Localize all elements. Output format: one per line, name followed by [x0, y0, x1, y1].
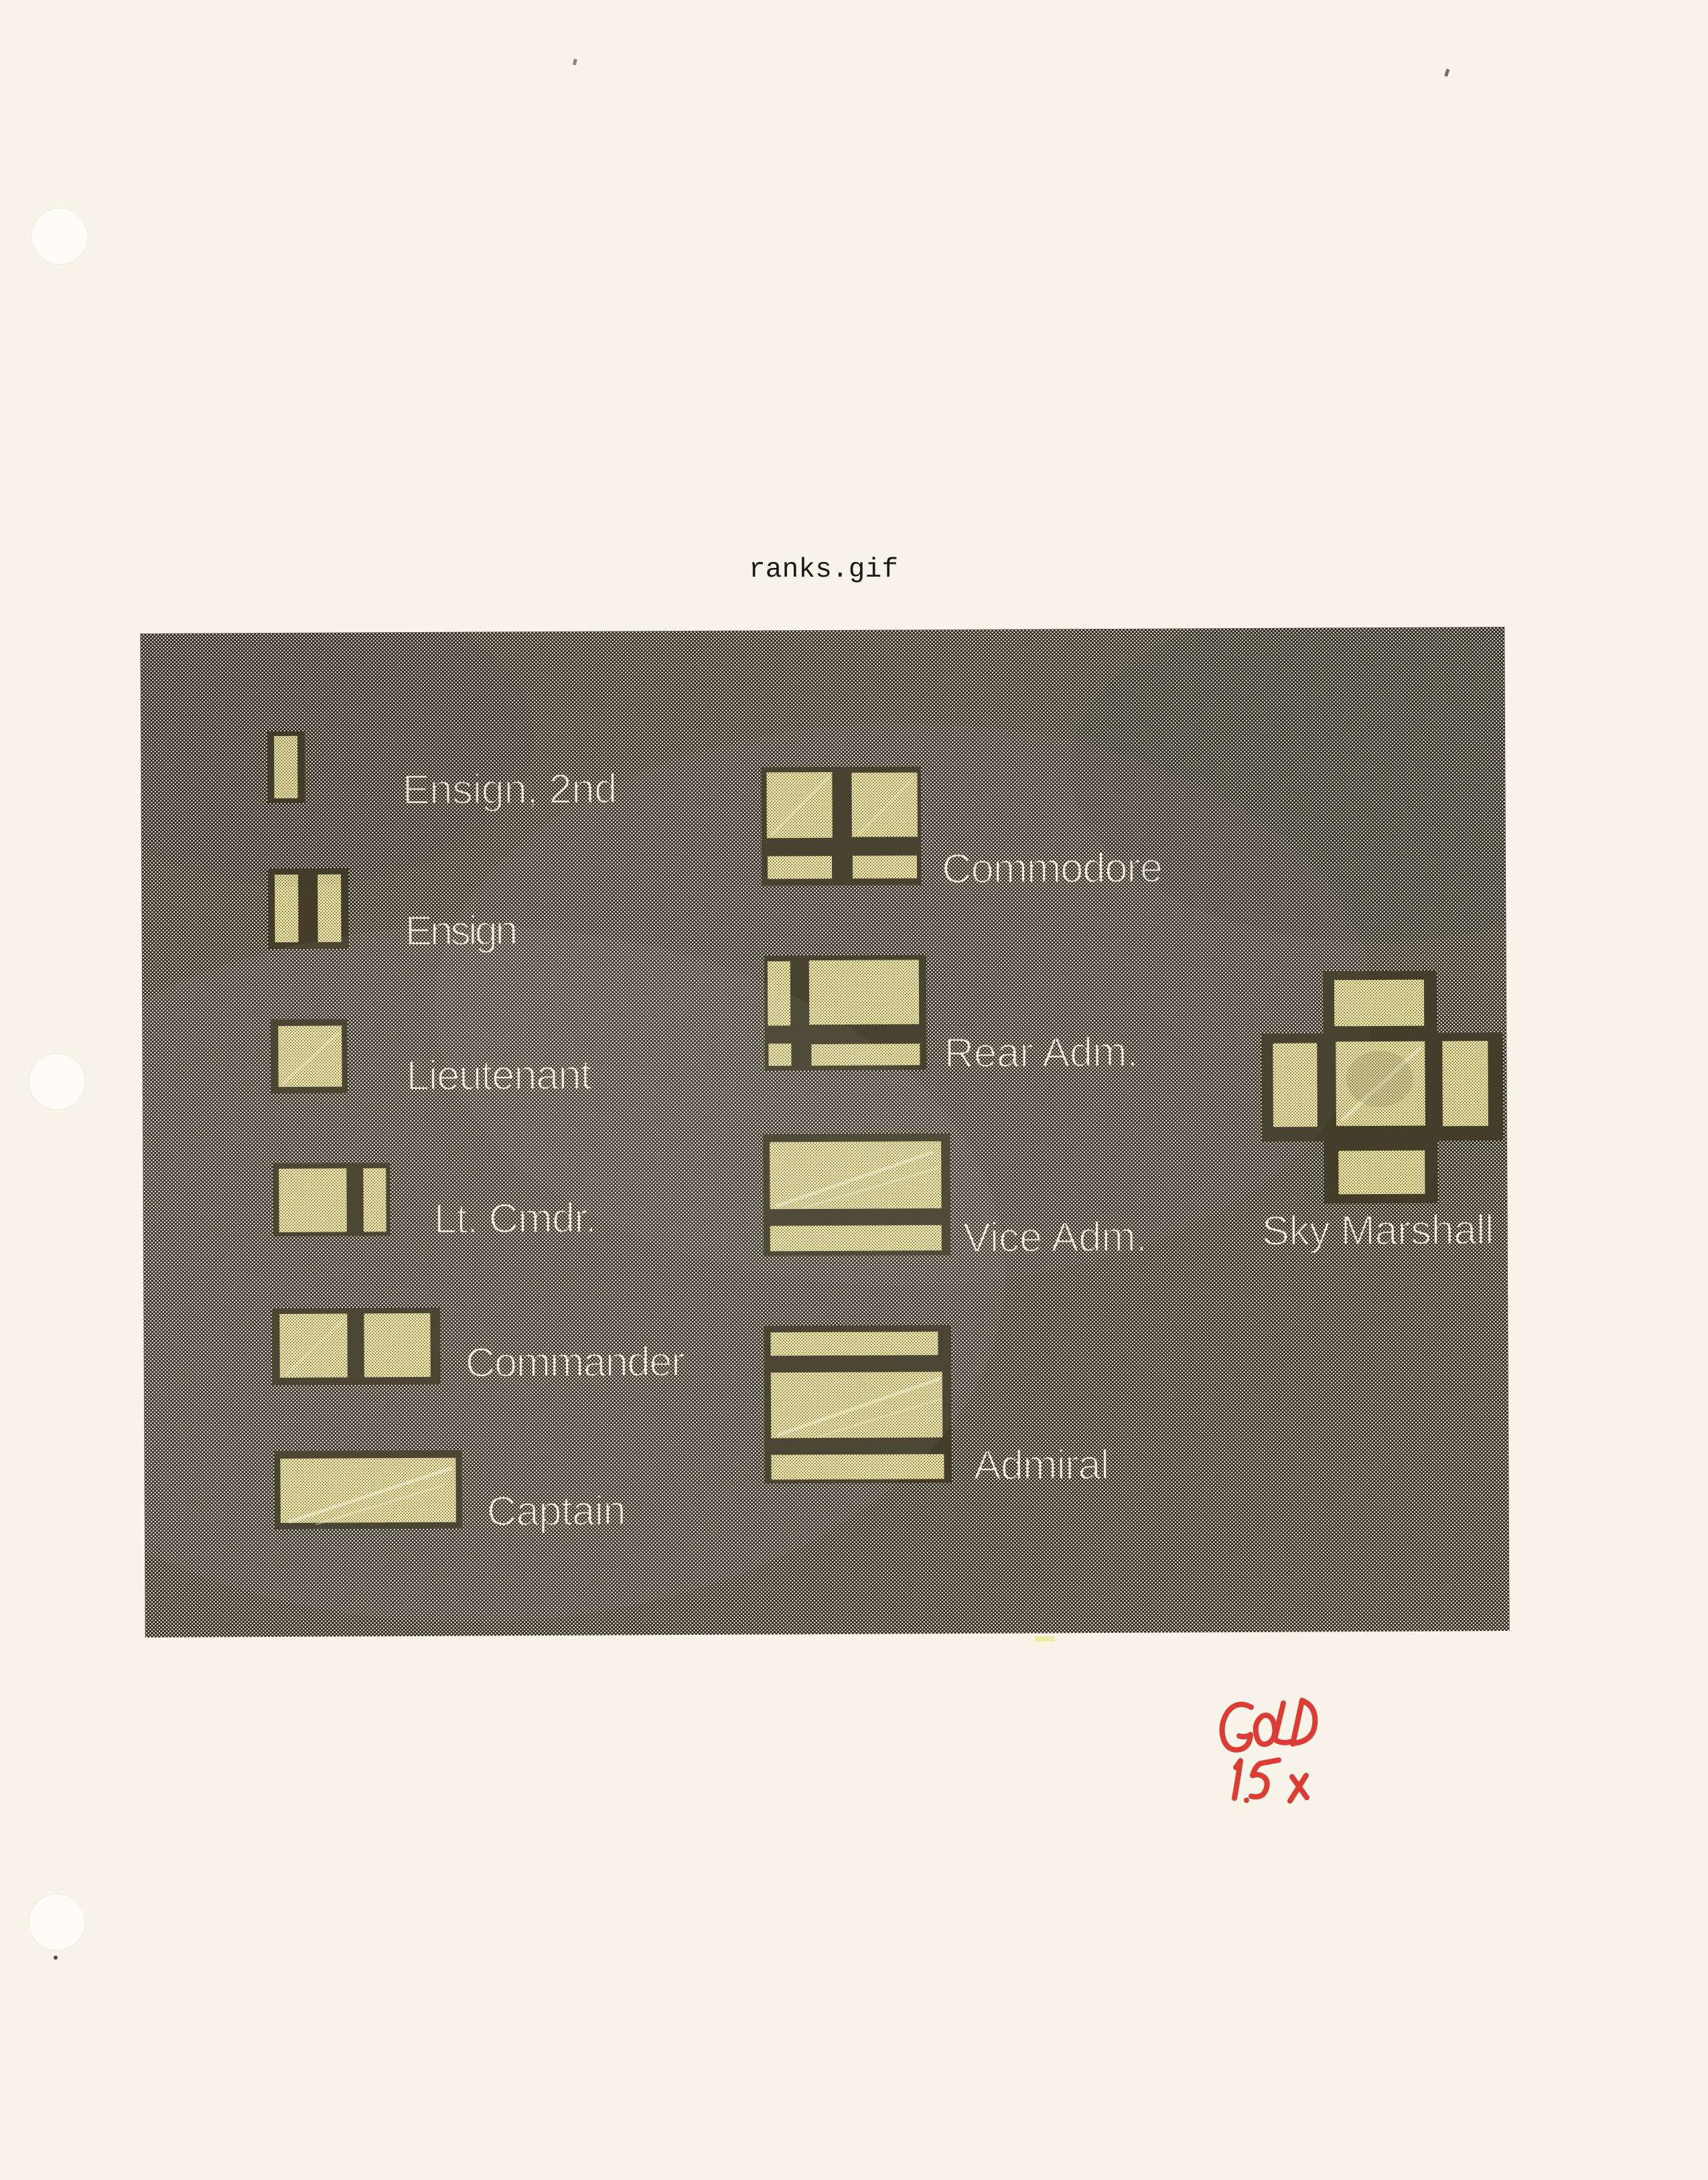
svg-text:ranks.gif: ranks.gif — [749, 555, 898, 585]
svg-text:Sky Marshall: Sky Marshall — [1262, 1207, 1494, 1254]
svg-text:Admiral: Admiral — [973, 1442, 1109, 1489]
